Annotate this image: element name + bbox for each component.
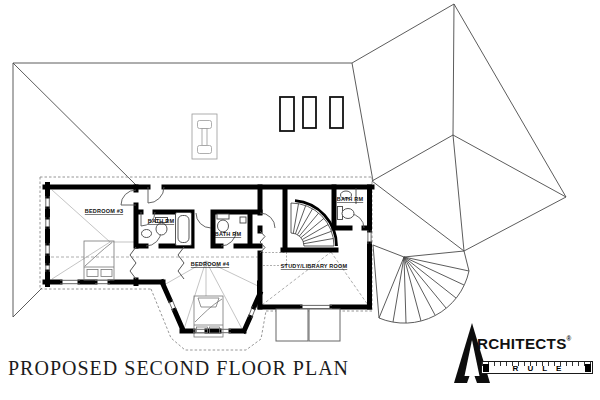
architects-rule-logo: RCHITECTS® RULE [449,321,597,383]
ruler-word: RULE [504,365,571,373]
drawing-title: PROPOSED SECOND FLOOR PLAN [8,357,349,380]
label-study: STUDY/LIBRARY ROOM [281,263,348,269]
door-swings [121,187,364,246]
floor-plan-sheet: BEDROOM #3 BATH RM BATH RM BATH RM BEDRO… [0,0,600,400]
bath3-fixtures [338,188,357,220]
label-bath-mid: BATH RM [215,231,242,237]
bathtub-inner [178,216,189,243]
roof-outline [13,4,566,317]
label-bedroom3: BEDROOM #3 [85,208,123,214]
sink [142,230,152,238]
roof-vents [280,97,343,131]
toilet-tank [217,214,229,219]
logo-letter-a-mark [452,323,492,383]
bifold-doors [130,231,265,279]
roof-finial [192,114,217,159]
staircase [291,201,337,246]
label-bath-right: BATH RM [337,196,364,202]
bedroom3-bed [84,241,114,280]
toilet-bowl [156,223,167,235]
ceiling-dashed-lines [46,252,368,305]
logo-ruler: RULE [481,361,593,374]
ruler-end-right [585,364,591,372]
ruler-end-left [483,364,489,372]
registered-mark-icon: ® [567,335,572,342]
turret-fan-roof [373,245,469,323]
toilet-bowl [342,209,354,219]
sink [240,217,246,223]
logo-brand-text: RCHITECTS® [477,335,572,353]
lower-roof-boxes [276,309,340,341]
logo-brand-rest: RCHITECTS [477,335,567,352]
label-bedroom4: BEDROOM #4 [191,261,230,267]
label-bath-left: BATH RM [148,218,175,224]
bath2-fixtures [217,214,246,232]
